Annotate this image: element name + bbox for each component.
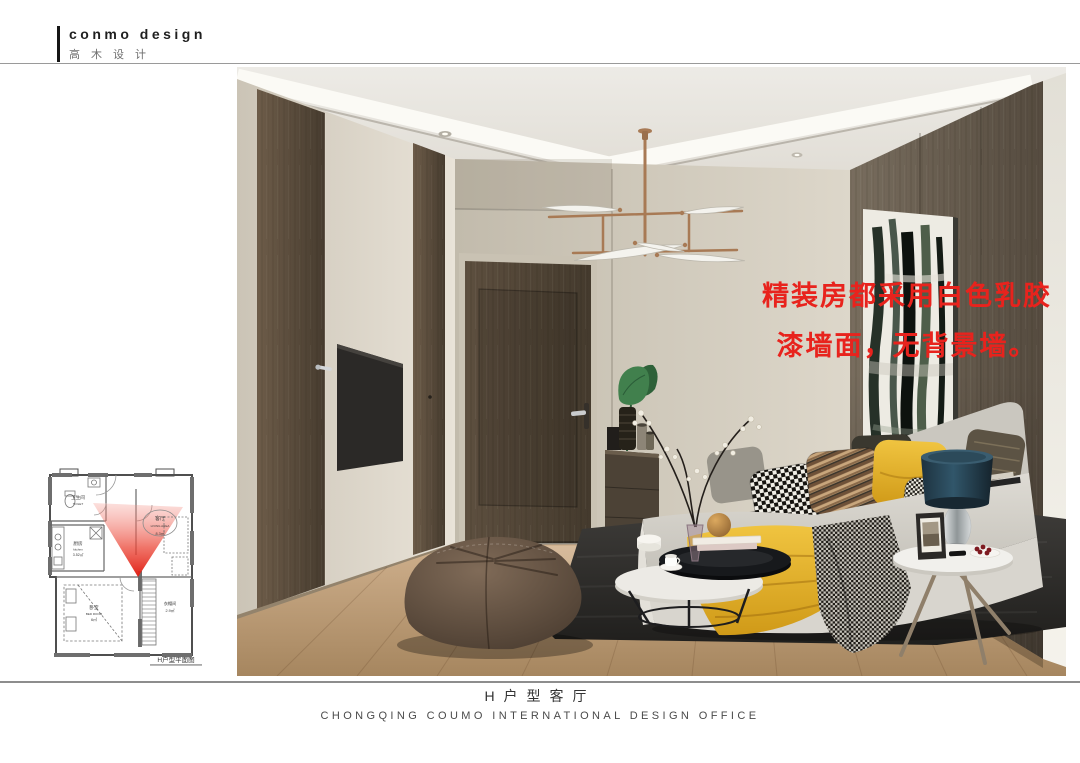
interior-door-left [257, 89, 332, 609]
plan-room-living-en: LIVING AREA [151, 524, 170, 528]
books-stack [693, 536, 761, 551]
annotation-line-1: 精装房都采用白色乳胶 [737, 271, 1077, 321]
annotation-overlay: 精装房都采用白色乳胶 漆墙面，无背景墙。 [737, 271, 1077, 371]
wooden-sphere [707, 513, 731, 537]
footer-caption: H户型客厅 CHONGQING COUMO INTERNATIONAL DESI… [0, 686, 1080, 722]
plan-room-living-zh: 客厅 [155, 515, 165, 522]
interior-door-right [413, 143, 445, 555]
page-title: H户型客厅 [0, 686, 1080, 706]
brand-logo: conmo design 高木设计 [57, 26, 206, 62]
plan-room-toilet-en: TOILET [73, 502, 84, 506]
plan-room-bedroom-zh: 卧室 [89, 604, 99, 611]
main-door [459, 253, 597, 546]
photo-frame [916, 512, 946, 559]
plan-room-kitchen-area: 3.52㎡ [73, 552, 84, 557]
left-wall [237, 79, 455, 627]
plan-room-living-area: 8.3㎡ [155, 531, 164, 536]
round-box [637, 535, 661, 552]
top-divider [0, 63, 1080, 64]
plan-room-bedroom-area: 6㎡ [91, 617, 97, 622]
brand-logo-bar [57, 26, 60, 62]
remote [949, 551, 966, 557]
living-room-render: 精装房都采用白色乳胶 漆墙面，无背景墙。 [237, 67, 1066, 676]
plan-room-kitchen-zh: 厨房 [73, 540, 83, 547]
plan-camera-cone [93, 503, 183, 577]
plan-walls [48, 469, 194, 657]
bottom-divider [0, 681, 1080, 683]
annotation-line-2: 漆墙面，无背景墙。 [737, 321, 1077, 371]
svg-text:H户型平面图: H户型平面图 [157, 655, 194, 664]
black-box [607, 427, 621, 450]
brand-name-zh: 高木设计 [69, 46, 206, 62]
floor-plan-drawing: 卫生间 TOILET 厨房 kitchen 3.52㎡ 客厅 LIVING AR… [36, 459, 208, 669]
presentation-page: conmo design 高木设计 [0, 0, 1080, 763]
page-subtitle: CHONGQING COUMO INTERNATIONAL DESIGN OFF… [0, 710, 1080, 722]
tv-panel [337, 344, 403, 471]
render-scene [237, 67, 1066, 676]
plan-room-toilet-zh: 卫生间 [71, 494, 85, 501]
plan-room-cloak-zh: 衣帽间 [164, 600, 177, 607]
table-top [893, 544, 1013, 572]
plan-caption: H户型平面图 [150, 655, 202, 665]
vase [619, 407, 636, 450]
brand-name-en: conmo design [69, 26, 206, 42]
plan-room-cloak-area: 2.9㎡ [165, 608, 174, 613]
plan-room-bedroom-en: BED ROOM [86, 612, 103, 616]
floor-plan: 卫生间 TOILET 厨房 kitchen 3.52㎡ 客厅 LIVING AR… [36, 459, 208, 669]
plan-room-kitchen-en: kitchen [73, 548, 83, 552]
